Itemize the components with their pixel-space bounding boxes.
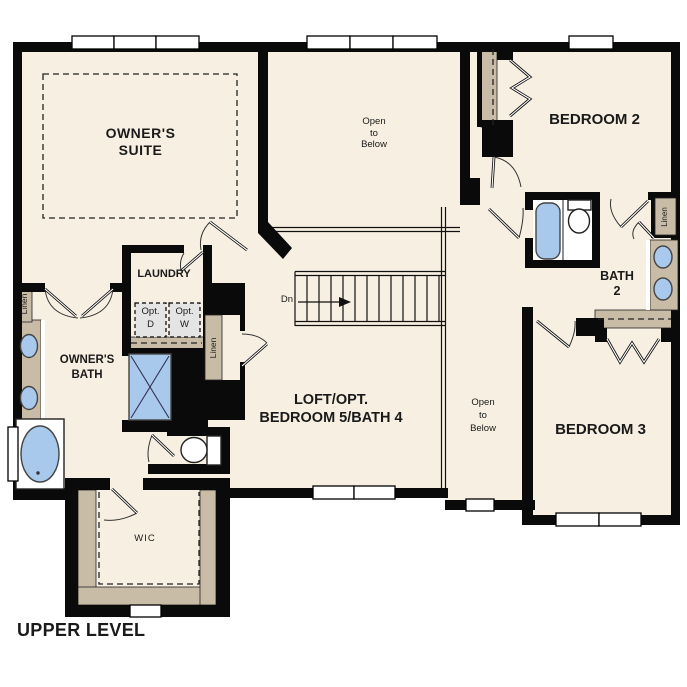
window bbox=[8, 427, 18, 481]
window bbox=[466, 499, 494, 511]
wic-shelf-right bbox=[200, 490, 216, 605]
wall-owners-suite-right bbox=[258, 52, 268, 233]
room-label-line: BATH bbox=[37, 368, 137, 383]
window bbox=[569, 36, 613, 49]
wall-toilet-room-top bbox=[167, 427, 230, 436]
owners-bathtub bbox=[21, 426, 59, 482]
bath2-toilet-bowl bbox=[569, 209, 590, 233]
wall-bedroom3-closet-stub bbox=[661, 328, 680, 342]
bath2-sink bbox=[654, 278, 672, 300]
room-label-line: to bbox=[344, 128, 404, 140]
wall-laundry-right bbox=[203, 245, 212, 285]
window bbox=[556, 513, 599, 526]
room-label-bedroom-3: BEDROOM 3 bbox=[518, 421, 683, 438]
room-label-bath-2: BATH 2 bbox=[593, 269, 641, 299]
opt-label-line: W bbox=[169, 318, 200, 331]
window bbox=[313, 486, 354, 499]
owners-toilet-bowl bbox=[181, 438, 207, 463]
wall-shower-bottom bbox=[122, 420, 170, 432]
wall-bath2-top bbox=[525, 192, 600, 200]
owners-sink bbox=[21, 335, 38, 358]
wall-wic-left bbox=[65, 478, 78, 617]
wall-bedroom2-corner-block bbox=[482, 120, 513, 157]
linen-label-right: Linen bbox=[659, 187, 671, 247]
window bbox=[350, 36, 393, 49]
room-label-wic: WIC bbox=[123, 534, 167, 545]
tub-drain bbox=[36, 471, 39, 474]
linen-label-left: Linen bbox=[18, 274, 30, 334]
wall-wic-right bbox=[216, 478, 230, 617]
owners-sink bbox=[21, 387, 38, 410]
room-label-laundry: LAUNDRY bbox=[129, 268, 199, 281]
vanity-counter-edge bbox=[646, 240, 650, 310]
linen-label-hall: Linen bbox=[207, 318, 219, 378]
opt-label-line: Opt. bbox=[135, 305, 166, 318]
floor-plan-drawing bbox=[0, 0, 687, 687]
window bbox=[72, 36, 114, 49]
wall-bedroom2-closet-left bbox=[477, 47, 482, 127]
room-label-line: to bbox=[453, 409, 513, 422]
wall-wic-top bbox=[65, 478, 110, 490]
room-label-line: BEDROOM 5/BATH 4 bbox=[225, 410, 437, 428]
wall-hall-closet-block bbox=[203, 283, 245, 315]
room-label-line: LOFT/OPT. bbox=[225, 392, 437, 410]
wall-bedroom3-closet-stub bbox=[595, 328, 607, 342]
bath2-bathtub bbox=[536, 203, 560, 259]
wall-linen2-left bbox=[651, 198, 655, 238]
room-label-line: 2 bbox=[593, 284, 641, 299]
room-label-line: SUITE bbox=[58, 142, 223, 159]
room-label-line: Below bbox=[453, 422, 513, 435]
opt-washer-label: Opt. W bbox=[169, 305, 200, 331]
wall-bath-core bbox=[168, 348, 208, 432]
exterior-cut bbox=[445, 510, 522, 687]
room-label-line: OWNER'S bbox=[58, 125, 223, 142]
window bbox=[393, 36, 437, 49]
opt-label-line: Opt. bbox=[169, 305, 200, 318]
wall-bath2-left bbox=[525, 192, 533, 210]
stairs-down-label: Dn bbox=[277, 295, 297, 306]
wall-bath2-right bbox=[592, 192, 600, 268]
exterior-cut bbox=[522, 525, 687, 687]
floor-plan: OWNER'S SUITE Open to Below BEDROOM 2 BA… bbox=[0, 0, 687, 687]
wall-laundry-top bbox=[122, 245, 184, 253]
bedroom2-closet-shelf bbox=[481, 47, 497, 127]
bath2-sink bbox=[654, 246, 672, 268]
wall-bath2-bottom bbox=[525, 260, 600, 268]
window bbox=[354, 486, 395, 499]
wall-under-tub bbox=[13, 488, 65, 500]
wall-hall-stub bbox=[470, 178, 480, 205]
opt-label-line: D bbox=[135, 318, 166, 331]
room-label-owners-bath: OWNER'S BATH bbox=[37, 353, 137, 383]
room-label-open-to-below-lower: Open to Below bbox=[453, 396, 513, 435]
wall-bedroom2-divider bbox=[460, 42, 470, 205]
wic-shelf-bottom bbox=[78, 587, 218, 605]
window bbox=[307, 36, 350, 49]
window bbox=[599, 513, 641, 526]
exterior-cut bbox=[0, 500, 65, 687]
exterior-cut bbox=[230, 498, 445, 687]
room-label-owners-suite: OWNER'S SUITE bbox=[58, 125, 223, 159]
room-label-line: OWNER'S bbox=[37, 353, 137, 368]
window bbox=[156, 36, 199, 49]
room-label-bedroom-2: BEDROOM 2 bbox=[512, 111, 677, 128]
wall-bedroom2-closet-stub bbox=[497, 47, 513, 60]
room-label-line: Below bbox=[344, 139, 404, 151]
room-label-line: BATH bbox=[593, 269, 641, 284]
opt-dryer-label: Opt. D bbox=[135, 305, 166, 331]
room-label-line: Open bbox=[453, 396, 513, 409]
window bbox=[130, 605, 161, 617]
room-label-line: Open bbox=[344, 116, 404, 128]
room-label-loft: LOFT/OPT. BEDROOM 5/BATH 4 bbox=[225, 392, 437, 427]
window bbox=[114, 36, 156, 49]
room-label-open-to-below-upper: Open to Below bbox=[344, 116, 404, 151]
owners-toilet-tank bbox=[207, 436, 221, 465]
wall-laundry-left bbox=[122, 245, 131, 355]
hall-linen-floor bbox=[222, 315, 240, 380]
wall-bedroom3-left bbox=[522, 307, 533, 523]
plan-title: UPPER LEVEL bbox=[17, 620, 237, 641]
